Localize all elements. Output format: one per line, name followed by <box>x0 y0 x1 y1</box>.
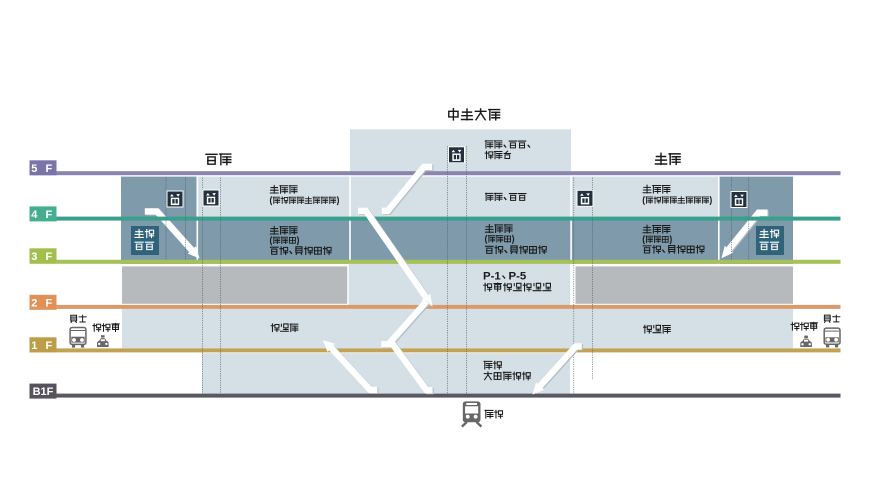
svg-text:P-1: P-1 <box>483 270 501 282</box>
svg-text:P-5: P-5 <box>509 270 527 282</box>
svg-text:2 F: 2 F <box>31 297 54 309</box>
svg-text:B1F: B1F <box>33 386 54 398</box>
svg-text:1 F: 1 F <box>31 340 54 352</box>
svg-text:4 F: 4 F <box>31 209 54 221</box>
svg-text:5 F: 5 F <box>31 163 54 175</box>
svg-text:3 F: 3 F <box>31 251 54 263</box>
